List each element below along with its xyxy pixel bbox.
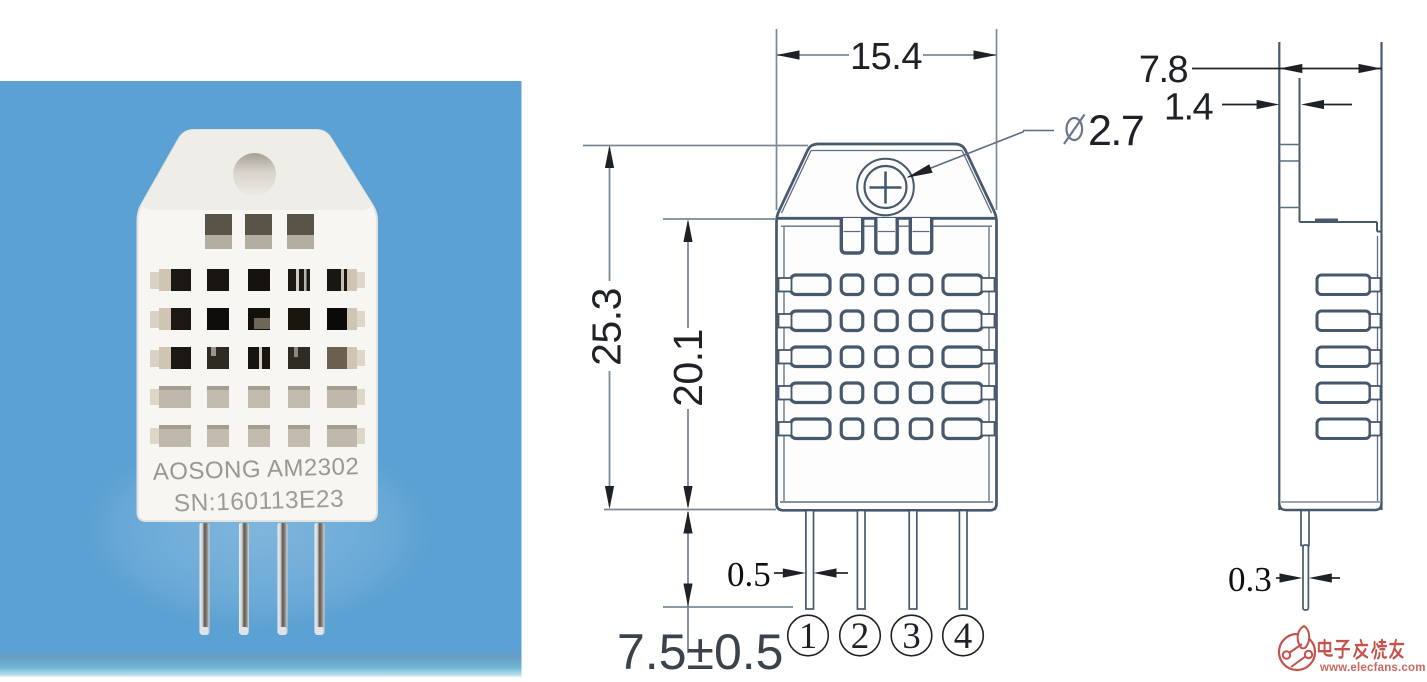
svg-text:4: 4 — [954, 616, 973, 657]
svg-text:AOSONG AM2302: AOSONG AM2302 — [152, 453, 359, 486]
svg-text:1: 1 — [799, 616, 818, 657]
svg-text:SN:160113E23: SN:160113E23 — [173, 486, 344, 518]
svg-text:3: 3 — [902, 616, 921, 657]
svg-text:7.5±0.5: 7.5±0.5 — [617, 624, 783, 680]
svg-text:2: 2 — [851, 616, 870, 657]
svg-text:0.5: 0.5 — [727, 555, 771, 594]
svg-text:2.7: 2.7 — [1088, 107, 1143, 155]
svg-text:15.4: 15.4 — [850, 36, 922, 78]
svg-text:7.8: 7.8 — [1139, 49, 1188, 91]
svg-text:1.4: 1.4 — [1164, 87, 1214, 129]
svg-text:25.3: 25.3 — [584, 288, 630, 366]
svg-text:20.1: 20.1 — [665, 329, 711, 407]
svg-text:0.3: 0.3 — [1228, 560, 1272, 599]
svg-text:www.elecfans.com: www.elecfans.com — [1319, 662, 1426, 674]
